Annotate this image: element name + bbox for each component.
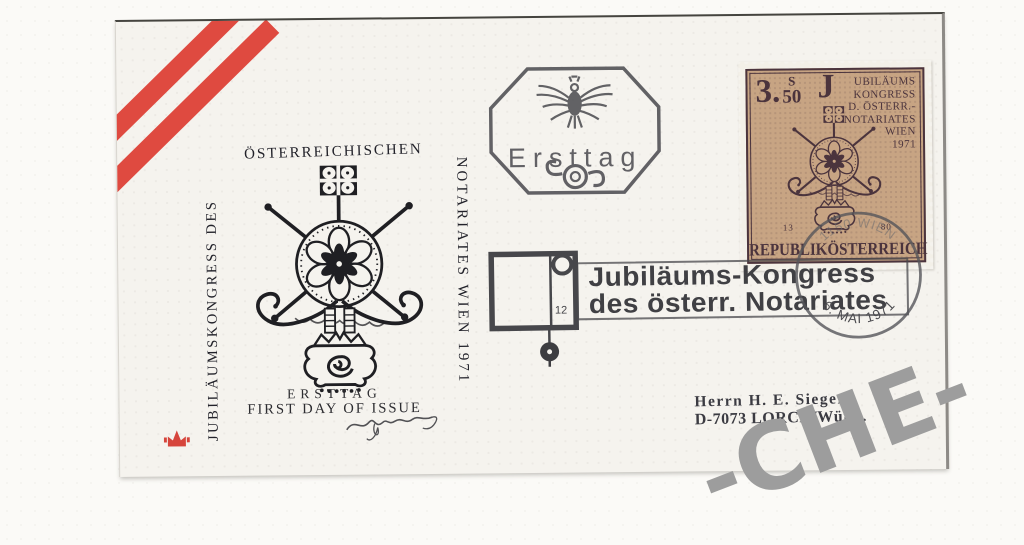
- scanned-first-day-cover: JUBILÄUMSKONGRESS DES ÖSTERREICHISCHEN N…: [0, 0, 1024, 545]
- svg-text:6. MAI 1971: 6. MAI 1971: [820, 297, 899, 327]
- deed-number: 12: [555, 304, 567, 316]
- circular-datestamp: 1150 WIEN 6. MAI 1971: [787, 204, 929, 346]
- notarial-deed-icon: 12: [486, 249, 584, 370]
- datestamp-date: 6. MAI 1971: [820, 297, 899, 327]
